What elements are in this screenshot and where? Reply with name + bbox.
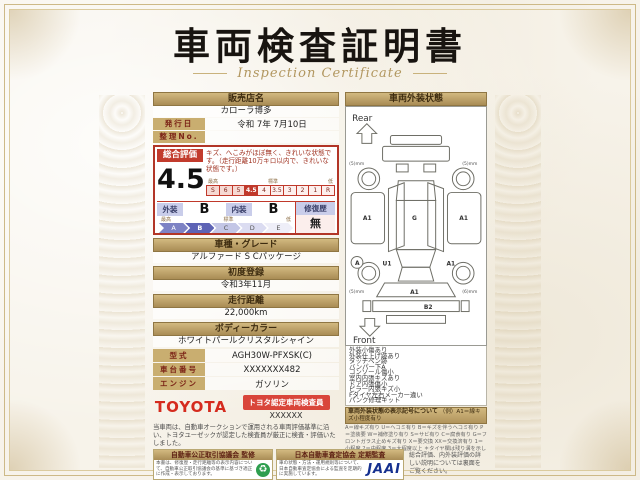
repair-history-label: 修復歴 (296, 202, 335, 215)
mark-left-quarter: A1 (363, 216, 372, 222)
scale-cell: 3 (284, 185, 297, 196)
dealer-value: カローラ博多 (153, 106, 339, 117)
ornament-subtitle-line-right (413, 73, 447, 74)
ornament-corner-bottom-right (560, 400, 630, 470)
mark-under-bumper: B2 (424, 305, 433, 311)
scale-cell: S (206, 185, 220, 196)
eco-recycle-icon: ♻ (256, 463, 270, 477)
mark-front-left-dent: U1 (383, 261, 392, 267)
jaai-audit-box: 日本自動車査定協会 定期監査 車の状態・方法・運用規則等について、日本自動車査定… (276, 449, 404, 480)
car-diagram-box: Rear (5)mm (5)mm A1 A1 G A U1 A1 A1 B2 (… (345, 106, 487, 346)
exterior-condition-column: 車両外装状態 (345, 92, 487, 459)
letter-scale: A B C D E (157, 223, 295, 233)
eval-description: キズ、へこみがほぼ無く、きれいな状態です。（走行距離10万キロ以内で、きれいな状… (206, 149, 335, 179)
disclaimer-text: 当車両は、自動車オークションで運用される車両評価基準に沿い、トヨタユーゼックが認… (153, 424, 339, 448)
council-text: 本書は、修復歴・走行距離等の表示内容について、自動車公正取引協議会の基準に基づき… (156, 461, 254, 478)
jaai-text: 車の状態・方法・運用規則等について、日本自動車査定協会による監査を定期的に実施し… (279, 461, 365, 478)
symbols-header: 車両外装状態の表示記号について (348, 408, 438, 415)
exterior-condition-header: 車両外装状態 (345, 92, 487, 106)
front-tread-right: (6)mm (462, 289, 478, 295)
ref-no-label: 整理No. (153, 131, 205, 143)
first-registration-value: 令和3年11月 (153, 280, 339, 291)
overall-eval-label: 総合評価 (157, 149, 203, 162)
model-code-label: 型式 (153, 349, 205, 362)
council-title: 自動車公正取引協議会 監修 (154, 450, 272, 460)
front-tread-left: (5)mm (349, 289, 365, 295)
model-grade-value: アルファード S Cパッケージ (153, 252, 339, 263)
scale-cell: 6 (220, 185, 233, 196)
letter-scale-label-low: 低 (286, 217, 291, 223)
inspector-id: XXXXXX (270, 411, 303, 420)
jaai-logo: JAAI (367, 462, 401, 477)
jaai-title: 日本自動車査定協会 定期監査 (277, 450, 403, 460)
first-registration-header: 初度登録 (153, 266, 339, 280)
scale-cell: 2 (297, 185, 310, 196)
interior-label: 内装 (226, 203, 252, 216)
exterior-grade: B (183, 202, 226, 217)
issue-date-value: 令和 7年 7月10日 (205, 118, 339, 130)
letter-cell-selected: B (185, 223, 214, 233)
scale-cell: 1 (309, 185, 322, 196)
dealer-header: 販売店名 (153, 92, 339, 106)
certificate-subtitle: Inspection Certificate (237, 66, 402, 81)
inspection-notes-list: 外装小傷あり 外装仕上げ跡あり タッチペン跡 バンパー下A コンソール傷小 室内… (345, 346, 487, 406)
certificate-subtitle-row: Inspection Certificate (0, 66, 640, 81)
rear-tread-right: (5)mm (462, 161, 478, 167)
scale-cell: 5 (233, 185, 246, 196)
mark-right-quarter: A1 (459, 216, 468, 222)
vehicle-info-column: 販売店名 カローラ博多 発行日 令和 7年 7月10日 整理No. 総合評価 4… (153, 92, 339, 459)
mileage-header: 走行距離 (153, 294, 339, 308)
interior-grade: B (252, 202, 295, 217)
ornament-corner-bottom-left (10, 400, 80, 470)
certified-inspector-badge: トヨタ認定車両検査員 (243, 395, 330, 410)
certificate-title: 車両検査証明書 (0, 16, 640, 70)
mark-front-left-wheel: A (355, 261, 360, 267)
rear-arrow-icon (357, 124, 377, 144)
mark-roof: G (412, 216, 417, 222)
front-arrow-icon (360, 318, 380, 336)
body-color-header: ボディーカラー (153, 322, 339, 336)
rear-tread-left: (5)mm (349, 161, 365, 167)
letter-cell: E (264, 223, 293, 233)
car-diagram-svg: Rear (5)mm (5)mm A1 A1 G A U1 A1 A1 B2 (… (346, 108, 486, 344)
scale-cell: 4 (258, 185, 271, 196)
grade-scale: S 6 5 4.5 4 3.5 3 2 1 R (206, 185, 335, 196)
chassis-no-value: XXXXXXX482 (205, 365, 339, 375)
issue-date-label: 発行日 (153, 118, 205, 130)
ornament-left-band (99, 95, 145, 468)
rear-label: Rear (352, 114, 373, 124)
letter-cell: A (159, 223, 188, 233)
exterior-label: 外装 (157, 203, 183, 216)
letter-cell: C (211, 223, 240, 233)
engine-label: エンジン (153, 377, 205, 390)
body-color-value: ホワイトパールクリスタルシャイン (153, 336, 339, 347)
overall-evaluation-box: 総合評価 4.5 キズ、へこみがほぼ無く、きれいな状態です。（走行距離10万キロ… (153, 145, 339, 235)
mark-front-right: A1 (446, 261, 455, 267)
note-item: パンク修理キット (349, 398, 483, 404)
overall-score: 4.5 (157, 162, 203, 199)
toyota-logo: TOYOTA (153, 398, 229, 416)
fair-trade-council-box: 自動車公正取引協議会 監修 本書は、修復歴・走行距離等の表示内容について、自動車… (153, 449, 273, 480)
certificate-page: 車両検査証明書 Inspection Certificate 販売店名 カローラ… (0, 0, 640, 480)
scale-cell: R (322, 185, 335, 196)
front-label: Front (353, 336, 376, 344)
footer-row: 自動車公正取引協議会 監修 本書は、修復歴・走行距離等の表示内容について、自動車… (153, 449, 487, 480)
scale-cell: 3.5 (271, 185, 284, 196)
repair-history-value: 無 (296, 215, 335, 233)
scale-cell-selected: 4.5 (245, 185, 258, 196)
letter-scale-label-mid: 標準 (223, 217, 233, 223)
letter-scale-label-high: 最高 (161, 217, 171, 223)
engine-value: ガソリン (205, 378, 339, 390)
model-code-value: AGH30W-PFXSK(C) (205, 351, 339, 361)
mileage-value: 22,000km (153, 308, 339, 319)
model-grade-header: 車種・グレード (153, 238, 339, 252)
letter-cell: D (238, 223, 267, 233)
mark-front-bumper: A1 (410, 290, 419, 296)
symbols-header-bar: 車両外装状態の表示記号について （例）A1＝線キズ小程度有り (345, 407, 487, 424)
chassis-no-label: 車台番号 (153, 363, 205, 376)
ornament-subtitle-line-left (193, 73, 227, 74)
ornament-right-band (495, 95, 541, 468)
back-page-note: 総合評価、内外装評価の詳しい説明については裏面をご覧ください。 (407, 449, 487, 480)
